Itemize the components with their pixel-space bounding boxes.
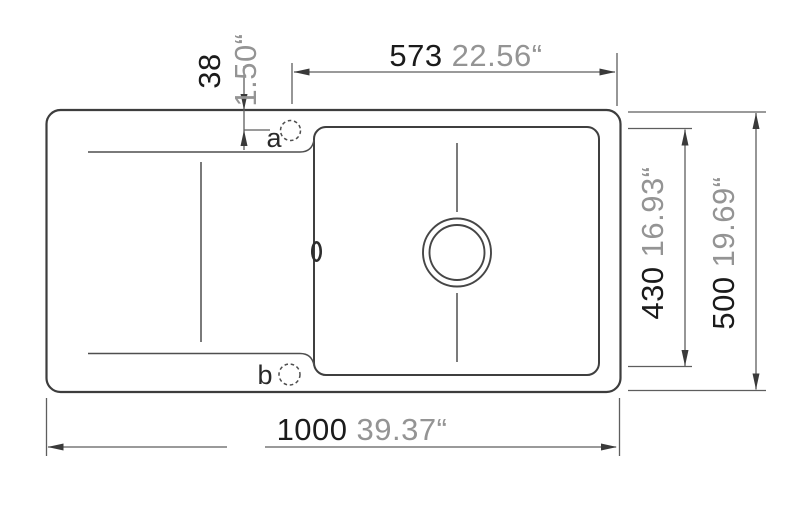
arrowhead-right xyxy=(600,69,616,76)
drainboard-bottom-edge xyxy=(88,354,314,366)
arrowhead-right xyxy=(601,444,617,451)
sink-body: a b xyxy=(47,110,621,392)
dimension-value-mm: 500 xyxy=(706,276,741,329)
arrowhead-down xyxy=(682,350,689,366)
drain-inner-circle xyxy=(430,225,485,280)
dimension-value-inch: 16.93“ xyxy=(635,166,670,257)
arrowhead-left xyxy=(48,444,64,451)
dimension-value-inch: 39.37“ xyxy=(357,412,448,447)
technical-drawing-page: a b 57322.56“ 38 1.50“ 4 xyxy=(0,0,800,531)
dimension-label: 57322.56“ xyxy=(389,38,542,73)
dimension-value-mm: 430 xyxy=(635,266,670,319)
dimension-value-inch: 22.56“ xyxy=(452,38,543,73)
arrowhead-left xyxy=(294,69,310,76)
tap-hole-a-circle xyxy=(281,121,301,141)
dimension-value-mm: 573 xyxy=(389,38,442,73)
dimension-value-inch: 1.50“ xyxy=(228,33,263,106)
arrowhead-up xyxy=(241,130,248,146)
tap-hole-b-circle xyxy=(279,364,300,385)
dimension-value-mm: 38 xyxy=(192,53,227,88)
dimension-value-mm: 1000 xyxy=(277,412,348,447)
dimension-label: 43016.93“ xyxy=(635,166,670,319)
overflow-marker xyxy=(312,242,320,260)
dimension-label: 50019.69“ xyxy=(706,176,741,329)
arrowhead-down xyxy=(753,374,760,390)
sink-dimension-drawing: a b 57322.56“ 38 1.50“ 4 xyxy=(0,0,800,531)
dimension-basin-depth: 43016.93“ xyxy=(628,129,692,367)
arrowhead-up xyxy=(753,113,760,129)
arrowhead-up xyxy=(682,130,689,146)
dimension-value-inch: 19.69“ xyxy=(706,176,741,267)
tap-hole-b-label: b xyxy=(257,360,272,390)
dimension-overall-width: 100039.37“ xyxy=(47,398,620,456)
drain-outer-circle xyxy=(423,219,491,287)
dimension-tap-offset: 38 1.50“ xyxy=(192,33,270,150)
dimension-basin-width: 57322.56“ xyxy=(292,38,617,106)
tap-hole-a-label: a xyxy=(266,123,282,153)
dimension-label: 100039.37“ xyxy=(277,412,448,447)
